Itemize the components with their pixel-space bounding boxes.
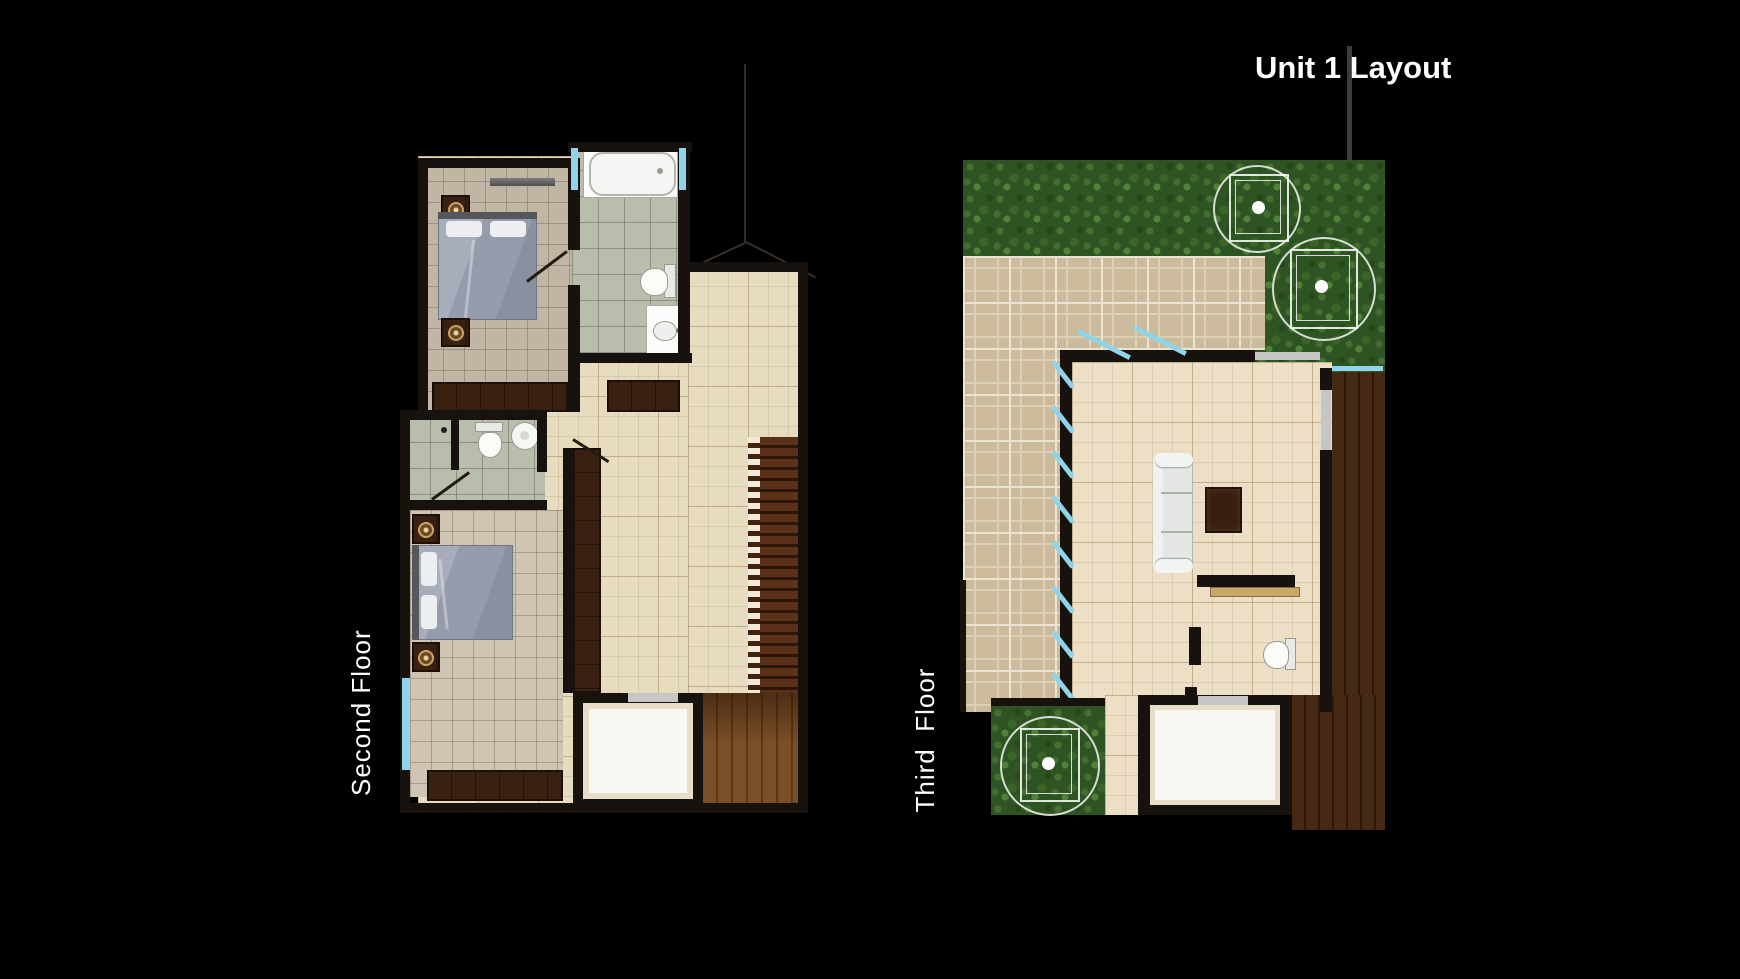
- closet-icon: [607, 380, 680, 412]
- sliding-door-threshold: [1321, 390, 1331, 450]
- paver-terrace: [963, 256, 1060, 712]
- lamp-icon: [418, 522, 434, 538]
- stairs-icon: [760, 437, 798, 693]
- landing-door: [628, 693, 678, 702]
- toilet-icon: [640, 262, 678, 300]
- wall: [568, 353, 692, 363]
- toilet-icon: [1263, 637, 1297, 671]
- wall: [798, 262, 808, 813]
- wall: [1197, 575, 1295, 587]
- second-floor-label: Second Floor: [348, 636, 374, 796]
- floorplan-sheet: Unit 1 Layout: [0, 0, 1740, 979]
- wall: [1060, 350, 1255, 362]
- wall: [1320, 450, 1332, 712]
- wall: [568, 285, 580, 412]
- console-shelf-icon: [1210, 587, 1300, 597]
- wall: [991, 698, 1105, 706]
- wall: [686, 262, 808, 272]
- wall: [1138, 695, 1150, 815]
- sink-icon: [511, 422, 539, 450]
- wall: [451, 420, 459, 470]
- wall: [418, 158, 428, 414]
- dresser-icon: [427, 770, 563, 801]
- wardrobe-icon: [573, 448, 601, 693]
- shower-head-icon: [441, 427, 447, 433]
- window-icon: [571, 148, 578, 190]
- toilet-icon: [475, 422, 503, 458]
- wall: [1320, 368, 1332, 390]
- section-line-left: [744, 64, 746, 242]
- wall: [400, 803, 808, 813]
- bed-icon: [412, 545, 513, 640]
- sofa-icon: [1153, 453, 1193, 573]
- sliding-door-threshold: [1255, 352, 1320, 360]
- bed-icon: [438, 212, 537, 320]
- wall: [537, 410, 547, 472]
- window-icon: [402, 678, 410, 770]
- lamp-icon: [448, 325, 464, 341]
- wall: [400, 500, 547, 510]
- wall: [1138, 805, 1292, 815]
- wall: [1280, 695, 1292, 815]
- second-floor-plan: [400, 142, 818, 813]
- lamp-icon: [418, 650, 434, 666]
- wood-deck: [1292, 695, 1385, 830]
- wall-shelf-icon: [490, 178, 555, 186]
- wall: [960, 580, 966, 712]
- third-floor-plan: [963, 160, 1390, 830]
- wall: [563, 448, 573, 693]
- landing-room: [1150, 705, 1280, 805]
- bathtub-icon: [583, 146, 678, 198]
- wood-floor: [703, 693, 798, 803]
- landing-door: [1198, 696, 1248, 705]
- wall: [568, 142, 692, 152]
- wall: [418, 158, 576, 168]
- rug-icon: [1205, 487, 1242, 533]
- wall: [1189, 627, 1201, 665]
- landing-room: [583, 703, 693, 799]
- wall: [400, 410, 547, 420]
- window-icon: [679, 148, 686, 190]
- stair-railing: [748, 437, 760, 693]
- wardrobe-icon: [432, 382, 568, 412]
- third-floor-label: Third Floor: [912, 660, 938, 820]
- page-title: Unit 1 Layout: [1255, 50, 1485, 86]
- sink-icon: [653, 321, 677, 341]
